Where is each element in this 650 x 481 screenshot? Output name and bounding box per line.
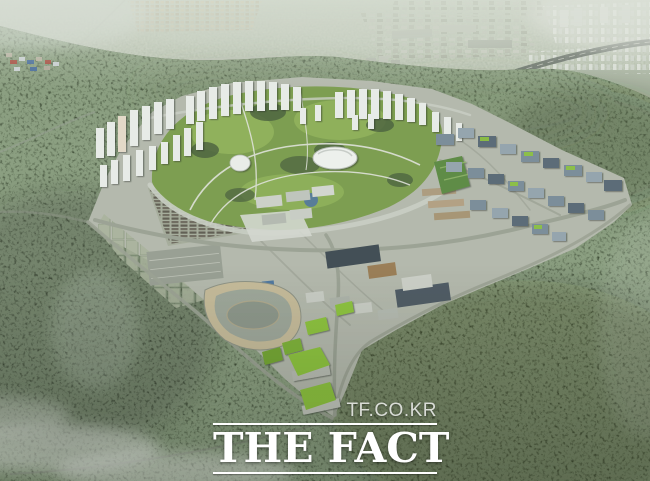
aerial-rendering-image: TF.CO.KR THE FACT	[0, 0, 650, 481]
aerial-scene	[0, 0, 650, 481]
mist-clouds	[0, 0, 650, 481]
